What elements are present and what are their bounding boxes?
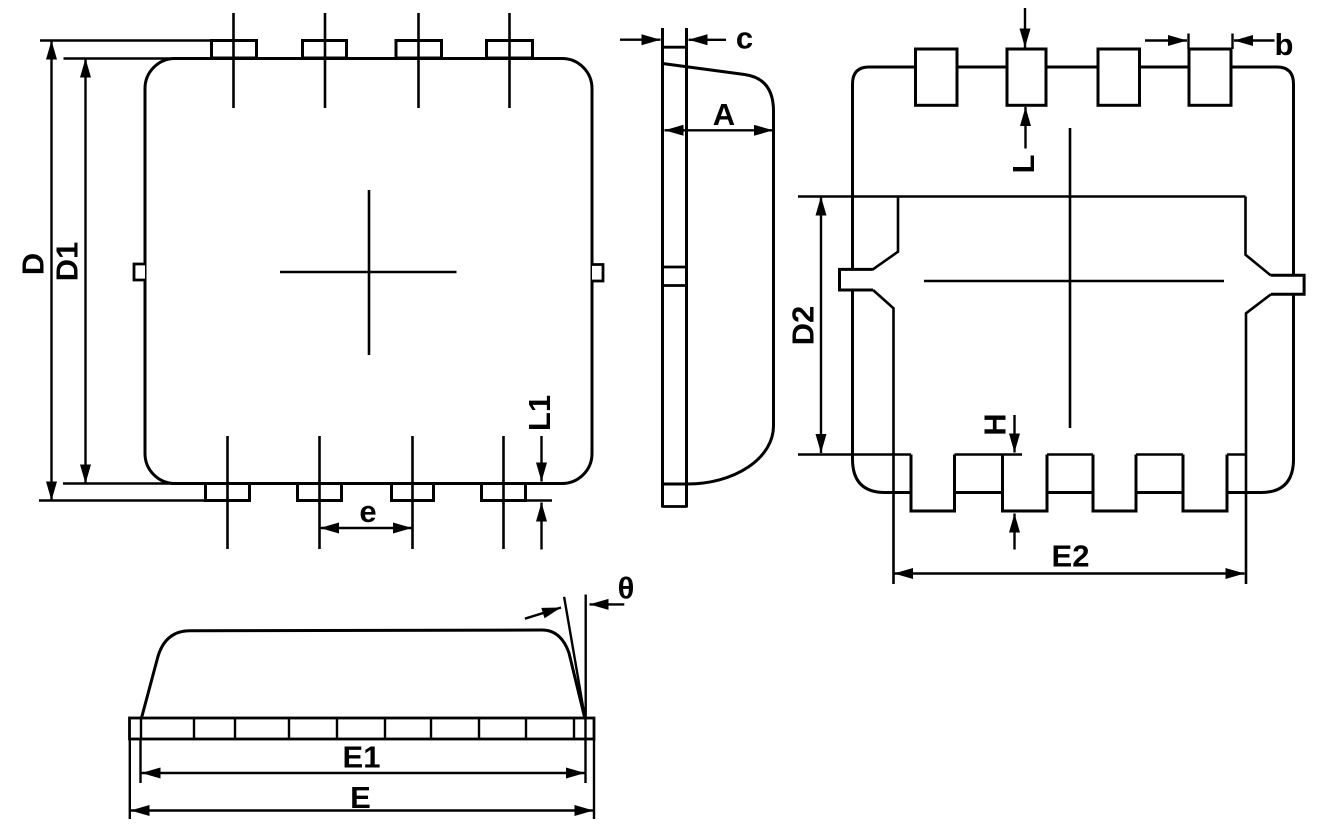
svg-text:b: b bbox=[1275, 27, 1294, 62]
svg-text:L: L bbox=[1006, 155, 1041, 174]
svg-text:L1: L1 bbox=[522, 395, 557, 431]
svg-text:θ: θ bbox=[618, 571, 635, 606]
svg-text:A: A bbox=[713, 97, 735, 132]
svg-text:E1: E1 bbox=[343, 740, 381, 775]
svg-text:D1: D1 bbox=[50, 242, 85, 282]
svg-text:E2: E2 bbox=[1052, 539, 1090, 574]
svg-text:e: e bbox=[359, 494, 376, 529]
svg-text:D2: D2 bbox=[786, 306, 821, 346]
svg-text:H: H bbox=[978, 413, 1013, 435]
svg-text:D: D bbox=[16, 253, 51, 275]
svg-text:E: E bbox=[350, 780, 371, 815]
svg-text:c: c bbox=[736, 21, 753, 56]
